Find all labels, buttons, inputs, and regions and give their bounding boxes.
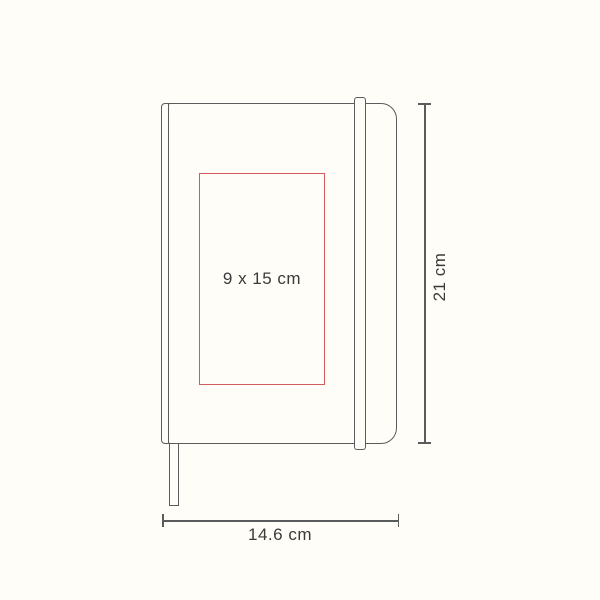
ribbon-bookmark <box>169 444 179 506</box>
width-dimension-line <box>163 520 398 522</box>
width-dimension-tick-right <box>398 514 400 527</box>
imprint-area-label: 9 x 15 cm <box>223 269 301 289</box>
height-dimension-tick-bottom <box>418 442 431 444</box>
elastic-band <box>354 97 366 450</box>
width-dimension-label: 14.6 cm <box>248 525 312 545</box>
width-dimension-tick-left <box>162 514 164 527</box>
imprint-area: 9 x 15 cm <box>199 173 325 385</box>
height-dimension-label: 21 cm <box>430 253 450 302</box>
height-dimension-line <box>424 104 426 443</box>
height-dimension-tick-top <box>418 103 431 105</box>
dimension-diagram: 9 x 15 cm 21 cm 14.6 cm <box>0 0 600 600</box>
